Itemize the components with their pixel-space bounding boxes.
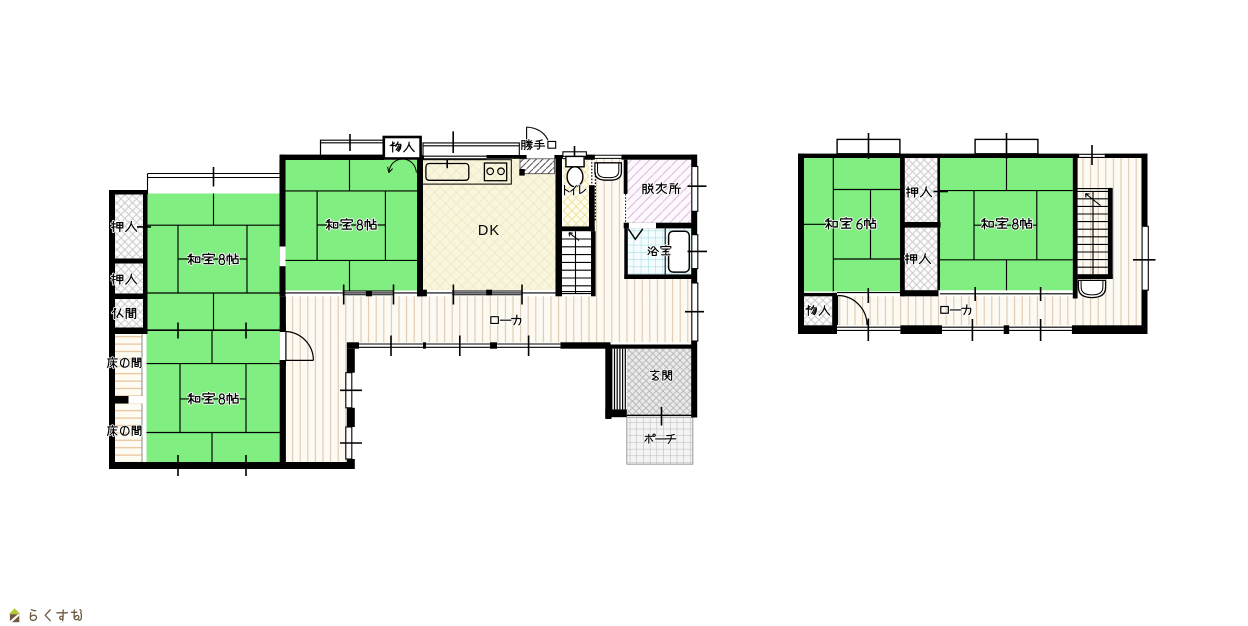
svg-text:DK: DK bbox=[478, 223, 500, 239]
